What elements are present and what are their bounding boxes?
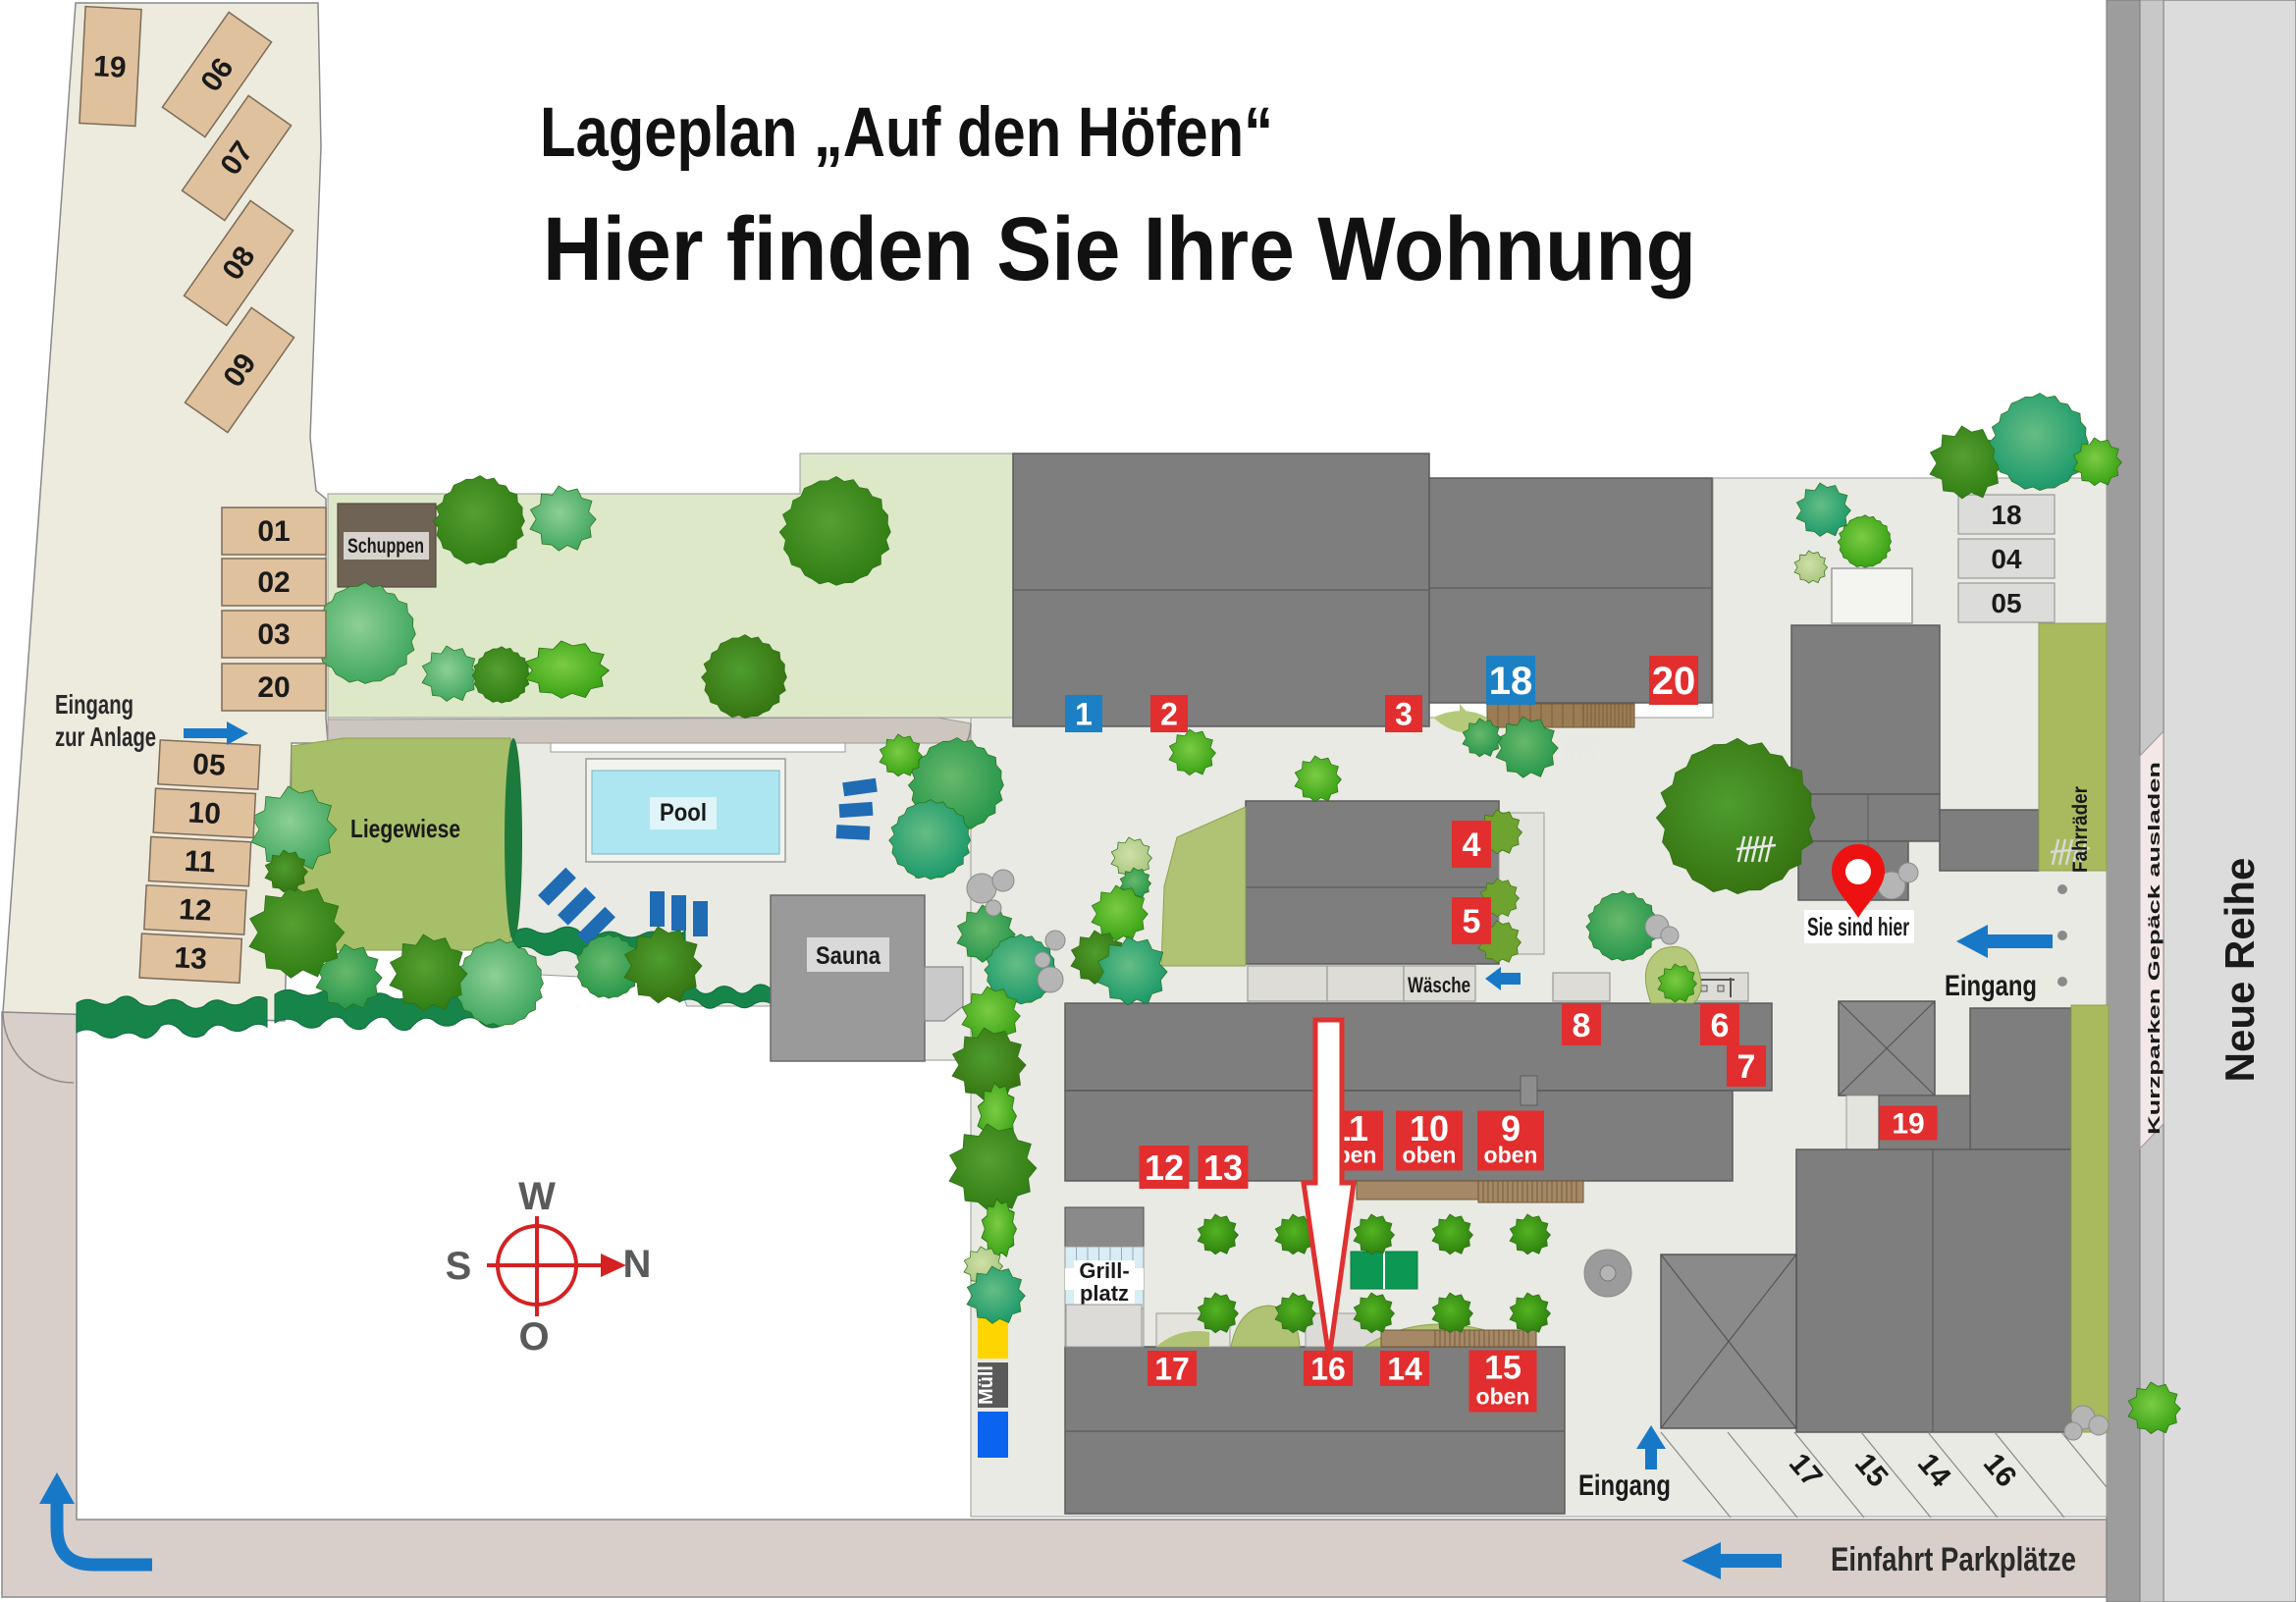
svg-text:Lageplan „Auf den Höfen“: Lageplan „Auf den Höfen“ — [540, 94, 1273, 172]
svg-text:N: N — [623, 1243, 652, 1286]
svg-text:O: O — [518, 1315, 549, 1359]
svg-text:zur Anlage: zur Anlage — [55, 721, 156, 752]
svg-text:oben: oben — [1476, 1384, 1530, 1410]
svg-text:4: 4 — [1463, 827, 1481, 864]
svg-text:11: 11 — [184, 845, 216, 880]
svg-text:02: 02 — [257, 566, 290, 599]
svg-text:19: 19 — [92, 50, 127, 84]
svg-text:1: 1 — [1075, 696, 1093, 731]
svg-text:05: 05 — [191, 748, 226, 782]
svg-text:Liegewiese: Liegewiese — [350, 814, 460, 843]
svg-text:13: 13 — [174, 941, 208, 976]
svg-text:Sie sind hier: Sie sind hier — [1807, 912, 1909, 941]
svg-text:W: W — [518, 1175, 556, 1218]
svg-text:04: 04 — [1991, 544, 2022, 574]
svg-text:Wäsche: Wäsche — [1408, 973, 1470, 997]
svg-text:Fahrräder: Fahrräder — [2069, 786, 2092, 873]
svg-text:12: 12 — [178, 893, 212, 928]
svg-text:05: 05 — [1991, 588, 2021, 618]
svg-text:3: 3 — [1395, 696, 1413, 731]
svg-text:5: 5 — [1463, 903, 1481, 940]
svg-text:Müll: Müll — [976, 1365, 997, 1405]
svg-text:18: 18 — [1991, 500, 2021, 530]
svg-text:10: 10 — [187, 796, 222, 830]
svg-text:8: 8 — [1573, 1007, 1591, 1044]
svg-text:19: 19 — [1892, 1108, 1924, 1141]
svg-text:Eingang: Eingang — [1945, 970, 2037, 1002]
svg-text:13: 13 — [1203, 1148, 1243, 1188]
svg-text:Kurzparken Gepäck ausladen: Kurzparken Gepäck ausladen — [2145, 762, 2163, 1135]
svg-text:Sauna: Sauna — [816, 942, 881, 970]
svg-text:Eingang: Eingang — [1578, 1469, 1671, 1502]
svg-text:S: S — [446, 1245, 472, 1288]
svg-text:oben: oben — [1403, 1143, 1457, 1168]
svg-text:Hier finden Sie Ihre Wohnung: Hier finden Sie Ihre Wohnung — [543, 199, 1696, 299]
svg-text:platz: platz — [1080, 1281, 1129, 1306]
svg-text:03: 03 — [257, 618, 290, 651]
svg-text:Pool: Pool — [660, 799, 707, 827]
svg-text:Neue Reihe: Neue Reihe — [2216, 858, 2263, 1083]
svg-text:Schuppen: Schuppen — [347, 535, 424, 558]
svg-text:14: 14 — [1387, 1351, 1422, 1386]
svg-text:Eingang: Eingang — [55, 689, 133, 720]
svg-text:oben: oben — [1484, 1143, 1538, 1168]
svg-text:01: 01 — [257, 515, 290, 548]
svg-text:Einfahrt Parkplätze: Einfahrt Parkplätze — [1831, 1541, 2076, 1578]
svg-text:15: 15 — [1484, 1349, 1522, 1386]
svg-text:7: 7 — [1737, 1048, 1756, 1086]
svg-text:20: 20 — [1652, 660, 1696, 703]
svg-text:20: 20 — [257, 671, 290, 704]
svg-text:Grill-: Grill- — [1079, 1258, 1129, 1283]
svg-text:12: 12 — [1145, 1148, 1184, 1188]
svg-text:18: 18 — [1489, 660, 1533, 703]
svg-text:2: 2 — [1160, 696, 1178, 731]
svg-text:6: 6 — [1711, 1007, 1730, 1044]
svg-text:17: 17 — [1154, 1351, 1190, 1386]
